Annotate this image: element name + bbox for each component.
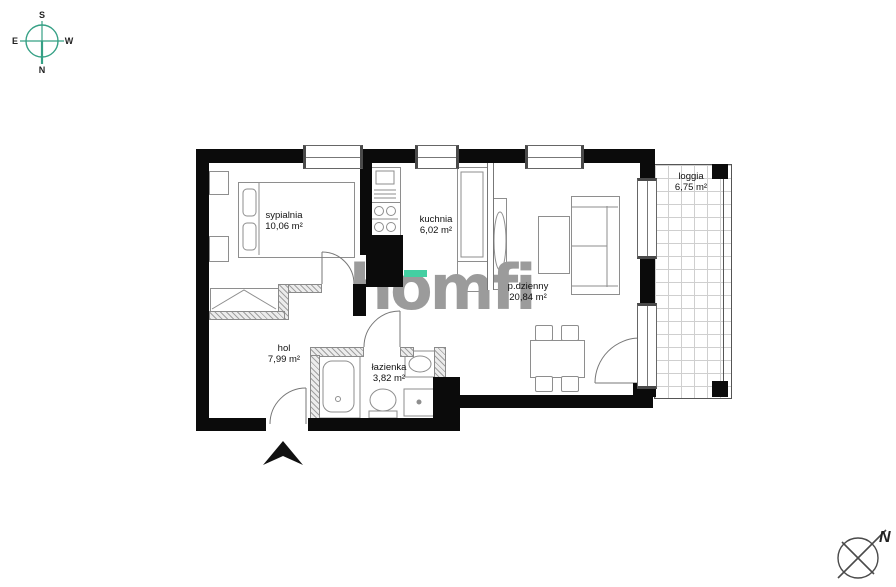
compass-label-s: S bbox=[39, 10, 45, 20]
floor-plan: homfi sypialnia 10,06 m² kuchnia 6,02 m²… bbox=[0, 0, 896, 587]
compass-rose-secondary: N bbox=[838, 529, 891, 578]
compass-label-n2: N bbox=[879, 529, 891, 546]
entrance-arrow bbox=[263, 441, 303, 465]
compass-label-w: W bbox=[65, 36, 74, 46]
compass-rose-primary: S W N E bbox=[12, 10, 74, 75]
compass-label-n: N bbox=[39, 65, 46, 75]
compass-label-e: E bbox=[12, 36, 18, 46]
